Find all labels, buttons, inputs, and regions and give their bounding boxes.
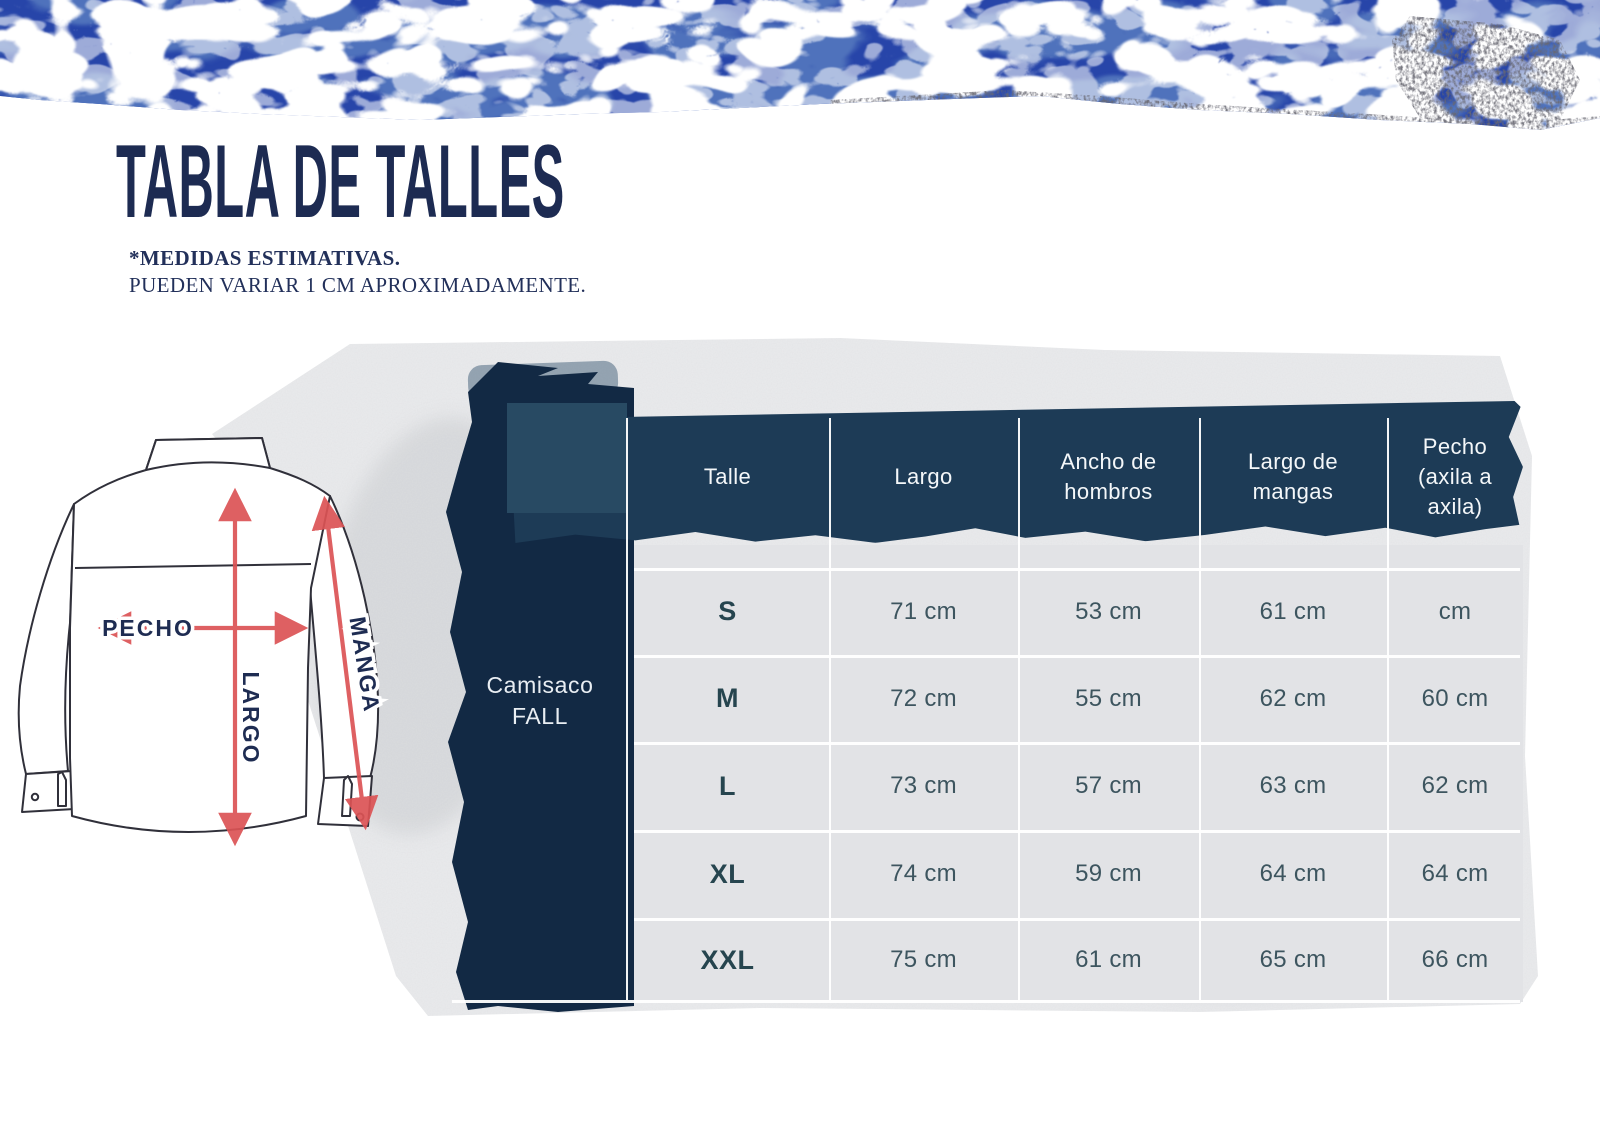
disclaimer-line-2: PUEDEN VARIAR 1 CM APROXIMADAMENTE. xyxy=(129,273,586,298)
column-header-largo-mangas: Largo de mangas xyxy=(1199,414,1387,540)
header-text: Largo xyxy=(894,462,952,492)
table-value: 66 cm xyxy=(1387,918,1523,1002)
table-value: 73 cm xyxy=(829,742,1018,830)
size-label: S xyxy=(626,568,829,655)
product-label: Camisaco FALL xyxy=(458,670,622,732)
header-text: Ancho de hombros xyxy=(1047,447,1171,507)
table-value: 57 cm xyxy=(1018,742,1199,830)
product-name: Camisaco xyxy=(458,670,622,701)
table-value: 75 cm xyxy=(829,918,1018,1002)
table-value: 62 cm xyxy=(1387,742,1523,830)
table-value: cm xyxy=(1387,568,1523,655)
largo-label: LARGO xyxy=(238,671,264,764)
table-value: 71 cm xyxy=(829,568,1018,655)
table-value: 74 cm xyxy=(829,830,1018,918)
column-header-talle: Talle xyxy=(626,414,829,540)
product-season: FALL xyxy=(458,701,622,732)
table-value: 53 cm xyxy=(1018,568,1199,655)
table-value: 72 cm xyxy=(829,655,1018,742)
table-value: 59 cm xyxy=(1018,830,1199,918)
shirt-measurement-diagram: PECHO LARGO MANGA xyxy=(8,428,400,870)
table-value: 64 cm xyxy=(1387,830,1523,918)
size-label: L xyxy=(626,742,829,830)
size-label: M xyxy=(626,655,829,742)
size-label: XL xyxy=(626,830,829,918)
disclaimer-line-1: *MEDIDAS ESTIMATIVAS. xyxy=(129,246,400,271)
table-value: 63 cm xyxy=(1199,742,1387,830)
pecho-label: PECHO xyxy=(102,615,194,641)
header-text: Pecho (axila a axila) xyxy=(1403,432,1507,522)
table-value: 61 cm xyxy=(1199,568,1387,655)
header-text: Largo de mangas xyxy=(1231,447,1355,507)
size-label: XXL xyxy=(626,918,829,1002)
column-header-largo: Largo xyxy=(829,414,1018,540)
column-header-ancho-hombros: Ancho de hombros xyxy=(1018,414,1199,540)
column-header-pecho: Pecho (axila a axila) xyxy=(1387,414,1523,540)
table-value: 62 cm xyxy=(1199,655,1387,742)
shirt-outline xyxy=(19,438,378,832)
page-title: TABLA DE TALLES xyxy=(116,136,565,228)
table-value: 65 cm xyxy=(1199,918,1387,1002)
header-text: Talle xyxy=(704,462,751,492)
size-chart-page: TABLA DE TALLES *MEDIDAS ESTIMATIVAS. PU… xyxy=(0,0,1600,1131)
brush-overlap-patch xyxy=(507,403,627,513)
table-value: 60 cm xyxy=(1387,655,1523,742)
table-value: 55 cm xyxy=(1018,655,1199,742)
table-value: 64 cm xyxy=(1199,830,1387,918)
table-value: 61 cm xyxy=(1018,918,1199,1002)
